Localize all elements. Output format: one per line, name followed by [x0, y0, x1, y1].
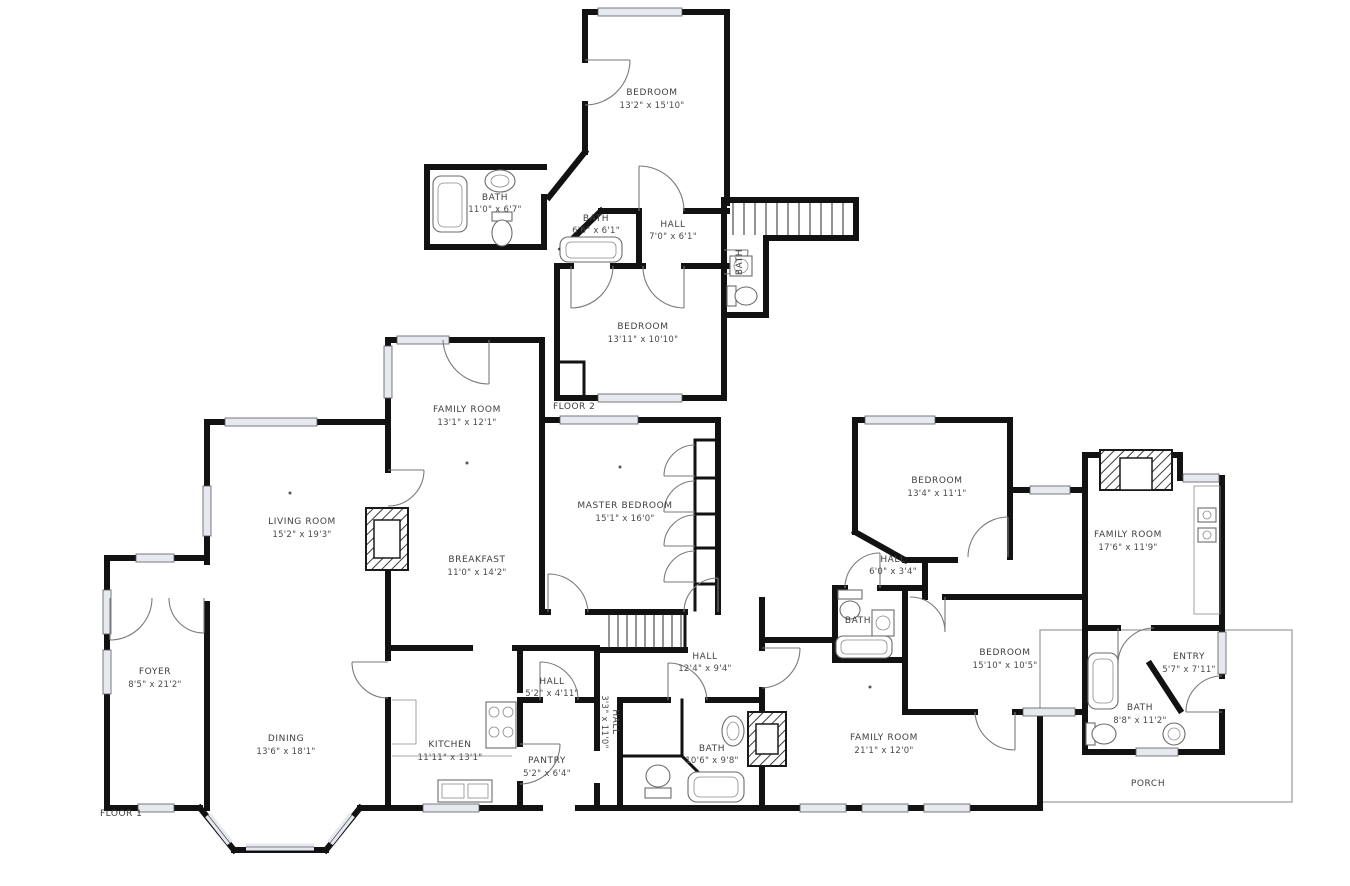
- room-name: BREAKFAST: [448, 555, 505, 565]
- room-name: DINING: [268, 734, 304, 744]
- windows: [103, 8, 1226, 847]
- room-name: BEDROOM: [979, 648, 1030, 658]
- room-name: BATH: [699, 744, 725, 754]
- sink: [1198, 528, 1216, 542]
- room-label-bath-stairs: BATH: [735, 249, 745, 275]
- room-name: KITCHEN: [428, 740, 471, 750]
- room-dims: 13'11" x 10'10": [608, 335, 679, 345]
- room-dims: 17'6" x 11'9": [1098, 543, 1157, 553]
- room-label-hall-floor2: HALL 7'0" x 6'1": [649, 220, 697, 242]
- room-name: HALL: [539, 677, 564, 687]
- bathtub: [1088, 653, 1118, 709]
- room-label-breakfast: BREAKFAST 11'0" x 14'2": [447, 555, 506, 578]
- room-label-hall-kitchen: HALL 5'2" x 4'11": [525, 677, 579, 699]
- room-dims: 7'0" x 6'1": [649, 232, 697, 242]
- room-name: BEDROOM: [911, 476, 962, 486]
- room-dims: 8'5" x 21'2": [128, 680, 182, 690]
- room-dims: 5'2" x 6'4": [523, 769, 571, 779]
- room-name: BATH: [583, 214, 609, 224]
- bathtub: [836, 636, 892, 658]
- room-label-master-bedroom: MASTER BEDROOM 15'1" x 16'0": [577, 501, 672, 524]
- room-name: LIVING ROOM: [268, 517, 336, 527]
- walls: [107, 12, 1222, 850]
- room-dims: 6'6" x 6'1": [572, 226, 620, 236]
- room-dims: 6'0" x 3'4": [869, 567, 917, 577]
- room-label-pantry: PANTRY 5'2" x 6'4": [523, 756, 571, 779]
- room-dims: 12'4" x 9'4": [678, 664, 732, 674]
- room-name: HALL: [880, 555, 905, 565]
- room-dims: 21'1" x 12'0": [854, 746, 913, 756]
- room-label-family-room-left: FAMILY ROOM 13'1" x 12'1": [433, 405, 501, 428]
- room-label-foyer: FOYER 8'5" x 21'2": [128, 667, 182, 690]
- room-name: ENTRY: [1173, 652, 1205, 662]
- room-dims: 15'1" x 16'0": [595, 514, 654, 524]
- floor-plan: BEDROOM 13'2" x 15'10" BATH 11'0" x 6'7"…: [0, 0, 1350, 886]
- room-dims: 11'0" x 6'7": [468, 205, 522, 215]
- staircase-floor1: [609, 614, 681, 648]
- room-name: BEDROOM: [617, 322, 668, 332]
- room-label-hall-center: HALL 12'4" x 9'4": [678, 652, 732, 674]
- sink: [722, 716, 744, 746]
- room-label-kitchen: KITCHEN 11'11" x 13'1": [418, 740, 483, 763]
- room-name: BATH: [482, 193, 508, 203]
- room-name: PANTRY: [528, 756, 566, 766]
- room-dims: 11'0" x 14'2": [447, 568, 506, 578]
- sink: [1163, 723, 1185, 745]
- room-label-bath-right-small: BATH: [845, 616, 871, 626]
- room-label-bedroom-right-lower: BEDROOM 15'10" x 10'5": [973, 648, 1038, 671]
- room-label-family-room-bottom: FAMILY ROOM 21'1" x 12'0": [850, 733, 918, 756]
- floor2-label: FLOOR 2: [553, 402, 595, 412]
- room-label-bedroom-lower: BEDROOM 13'11" x 10'10": [608, 322, 679, 345]
- room-name: BEDROOM: [626, 88, 677, 98]
- room-label-bedroom-top: BEDROOM 13'2" x 15'10": [620, 88, 685, 111]
- staircase-floor2: [733, 203, 843, 235]
- sink: [1198, 508, 1216, 522]
- room-label-living-room: LIVING ROOM 15'2" x 19'3": [268, 517, 336, 540]
- room-label-bath-center: BATH 10'6" x 9'8": [685, 744, 739, 766]
- toilet: [645, 788, 671, 798]
- sink: [872, 610, 894, 636]
- sink: [485, 170, 515, 192]
- room-dims: 8'8" x 11'2": [1113, 716, 1167, 726]
- room-label-hall-narrow: HALL 3'3" x 11'0": [599, 695, 620, 749]
- room-label-bedroom-right-upper: BEDROOM 13'4" x 11'1": [907, 476, 966, 499]
- toilet: [838, 590, 862, 599]
- room-label-dining: DINING 13'6" x 18'1": [256, 734, 315, 757]
- room-label-bath-small: BATH 6'6" x 6'1": [572, 214, 620, 236]
- room-dims: 3'3" x 11'0": [599, 695, 609, 749]
- room-dims: 11'11" x 13'1": [418, 753, 483, 763]
- room-dims: 5'2" x 4'11": [525, 689, 579, 699]
- room-dims: 15'2" x 19'3": [272, 530, 331, 540]
- fixtures: [289, 170, 1221, 802]
- room-label-family-room-right: FAMILY ROOM 17'6" x 11'9": [1094, 530, 1162, 553]
- room-name: HALL: [692, 652, 717, 662]
- room-dims: 15'10" x 10'5": [973, 661, 1038, 671]
- room-name: HALL: [610, 709, 620, 734]
- room-name: FAMILY ROOM: [850, 733, 918, 743]
- counter: [1194, 486, 1220, 614]
- room-dims: 5'7" x 7'11": [1162, 665, 1216, 675]
- room-dims: 13'2" x 15'10": [620, 101, 685, 111]
- floor-plan-page: BEDROOM 13'2" x 15'10" BATH 11'0" x 6'7"…: [0, 0, 1350, 886]
- room-dims: 13'6" x 18'1": [256, 747, 315, 757]
- floor1-label: FLOOR 1: [100, 809, 142, 819]
- room-dims: 13'4" x 11'1": [907, 489, 966, 499]
- bathtub: [688, 772, 744, 802]
- room-dims: 10'6" x 9'8": [685, 756, 739, 766]
- room-name: FAMILY ROOM: [433, 405, 501, 415]
- room-name: BATH: [1127, 703, 1153, 713]
- room-name: FAMILY ROOM: [1094, 530, 1162, 540]
- room-label-bath-large: BATH 11'0" x 6'7": [468, 193, 522, 215]
- room-name: FOYER: [139, 667, 171, 677]
- room-dims: 13'1" x 12'1": [437, 418, 496, 428]
- room-label-entry: ENTRY 5'7" x 7'11": [1162, 652, 1216, 675]
- kitchen-sink: [438, 780, 492, 802]
- room-name: MASTER BEDROOM: [577, 501, 672, 511]
- room-label-porch: PORCH: [1131, 779, 1165, 789]
- room-name: HALL: [660, 220, 685, 230]
- room-label-bath-right: BATH 8'8" x 11'2": [1113, 703, 1167, 726]
